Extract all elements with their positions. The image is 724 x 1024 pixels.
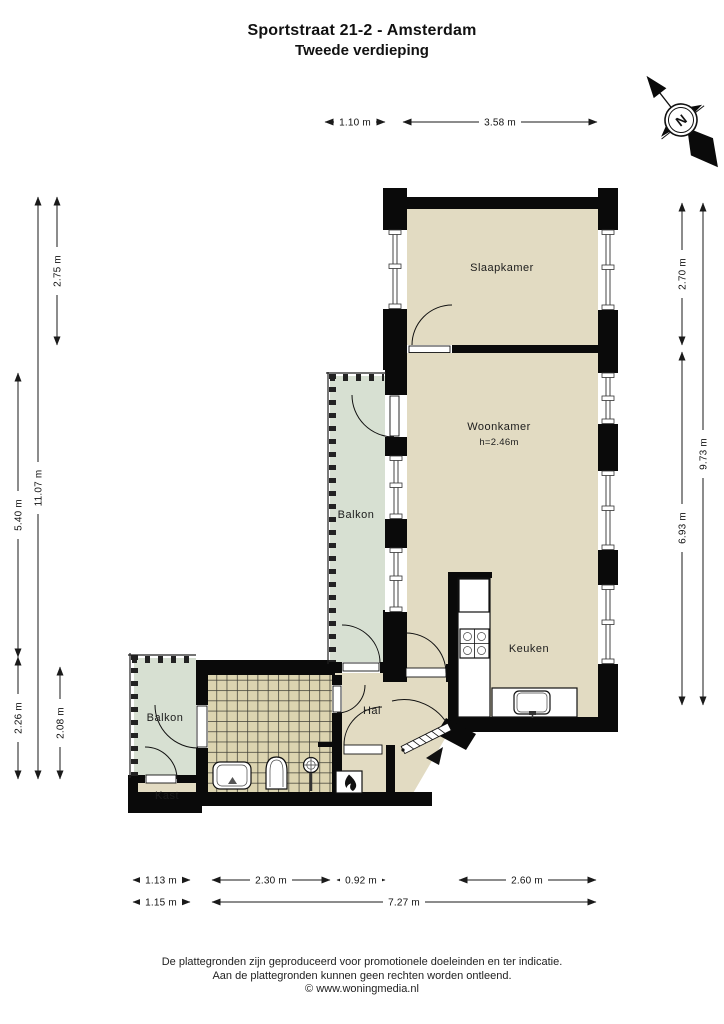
svg-text:2.75 m: 2.75 m	[53, 255, 64, 287]
window-woonkamer-balkon-2	[385, 548, 407, 612]
stove-icon	[460, 629, 489, 658]
dim-right-2: 9.73 m	[696, 203, 710, 705]
svg-text:11.07 m: 11.07 m	[34, 470, 45, 507]
svg-text:1.10 m: 1.10 m	[339, 118, 371, 129]
dim-left-1: 2.75 m	[50, 197, 64, 345]
label-keuken: Keuken	[509, 643, 549, 655]
footer-line-2: Aan de plattegronden kunnen geen rechten…	[0, 970, 724, 984]
svg-text:6.93 m: 6.93 m	[678, 512, 689, 544]
dim-bottom-6: 7.27 m	[212, 895, 596, 909]
svg-text:5.40 m: 5.40 m	[14, 499, 25, 531]
svg-text:7.27 m: 7.27 m	[388, 898, 420, 909]
window-slaapkamer-left	[383, 230, 407, 309]
dim-bottom-2: 2.30 m	[212, 873, 330, 887]
toilet-icon	[266, 757, 287, 789]
window-right-2	[598, 373, 618, 424]
kitchen-sink-counter	[492, 688, 577, 718]
label-kast: Kast	[155, 790, 179, 802]
dim-right-3: 6.93 m	[675, 352, 689, 705]
label-woonkamer-height: h=2.46m	[479, 437, 518, 448]
kitchen-sink-icon	[514, 691, 550, 718]
svg-text:2.26 m: 2.26 m	[14, 702, 25, 734]
svg-text:2.70 m: 2.70 m	[678, 258, 689, 290]
north-compass-icon: N	[625, 59, 724, 184]
dim-top-1: 1.10 m	[325, 115, 385, 129]
dim-left-4: 2.26 m	[11, 657, 25, 779]
svg-text:9.73 m: 9.73 m	[699, 438, 710, 470]
svg-text:1.15 m: 1.15 m	[145, 898, 177, 909]
footer: De plattegronden zijn geproduceerd voor …	[0, 956, 724, 997]
window-right-3	[598, 471, 618, 550]
floorplan-page: Sportstraat 21-2 - Amsterdam Tweede verd…	[0, 0, 724, 1024]
label-slaapkamer: Slaapkamer	[470, 262, 534, 274]
dim-bottom-5: 1.15 m	[133, 895, 190, 909]
room-main-fill	[393, 200, 610, 726]
dim-bottom-1: 1.13 m	[133, 873, 190, 887]
svg-text:3.58 m: 3.58 m	[484, 118, 516, 129]
dim-top-2: 3.58 m	[403, 115, 597, 129]
dim-left-2: 11.07 m	[31, 197, 45, 779]
svg-text:1.13 m: 1.13 m	[145, 876, 177, 887]
heater-icon	[336, 771, 362, 793]
kitchen-counter	[458, 578, 490, 717]
bathroom-sink-icon	[213, 762, 251, 789]
label-hal: Hal	[363, 705, 381, 717]
dim-bottom-3: 0.92 m	[337, 873, 385, 887]
window-right-4	[598, 585, 618, 664]
svg-text:2.08 m: 2.08 m	[56, 707, 67, 739]
svg-text:2.60 m: 2.60 m	[511, 876, 543, 887]
window-right-1	[598, 230, 618, 310]
label-balkon-low: Balkon	[147, 712, 184, 724]
dim-bottom-4: 2.60 m	[459, 873, 596, 887]
dim-left-5: 2.08 m	[53, 667, 67, 779]
dim-left-3: 5.40 m	[11, 373, 25, 657]
floor-plan-canvas: Slaapkamer Woonkamer h=2.46m Balkon Keuk…	[0, 0, 724, 1024]
svg-text:0.92 m: 0.92 m	[345, 876, 377, 887]
dim-right-1: 2.70 m	[675, 203, 689, 345]
label-woonkamer: Woonkamer	[467, 421, 531, 433]
label-balkon-mid: Balkon	[338, 509, 375, 521]
window-woonkamer-balkon-1	[385, 456, 407, 519]
fridge-icon	[459, 579, 489, 612]
footer-line-3: © www.woningmedia.nl	[0, 983, 724, 997]
svg-text:2.30 m: 2.30 m	[255, 876, 287, 887]
footer-line-1: De plattegronden zijn geproduceerd voor …	[0, 956, 724, 970]
